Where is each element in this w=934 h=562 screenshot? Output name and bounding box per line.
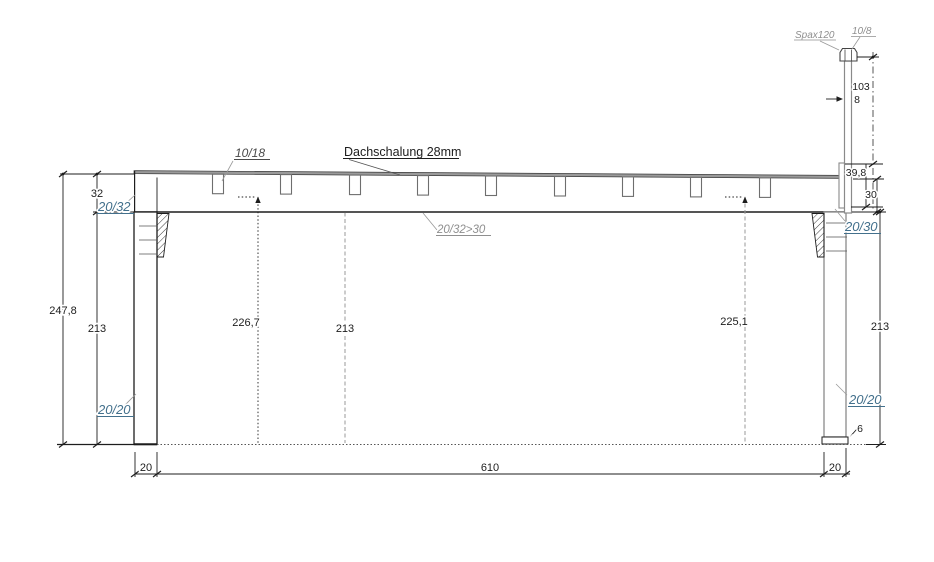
fascia-assembly bbox=[839, 49, 857, 214]
rafter bbox=[281, 175, 292, 195]
right-post bbox=[812, 212, 848, 444]
foot-height-pointer bbox=[850, 430, 857, 438]
component-labels: 10/18 Dachschalung 28mm 20/32>30 20/32 2… bbox=[97, 26, 885, 417]
rafter bbox=[418, 176, 429, 196]
rafter bbox=[486, 176, 497, 196]
right-knee-bracket bbox=[812, 214, 824, 258]
dim-board-height: 103 bbox=[852, 81, 870, 93]
dim-beam-height-right: 30 bbox=[865, 189, 877, 201]
dim-span: 610 bbox=[481, 462, 499, 474]
dim-board-thickness: 8 bbox=[854, 94, 860, 106]
rafter bbox=[213, 174, 224, 194]
dim-post-width-left: 20 bbox=[140, 462, 152, 474]
label-sheathing: Dachschalung 28mm bbox=[344, 145, 461, 159]
annotation-leaders bbox=[123, 37, 860, 407]
post-foot-plate bbox=[822, 437, 848, 444]
label-bracket-left: 20/32 bbox=[97, 199, 131, 214]
rafter bbox=[691, 177, 702, 197]
rafter bbox=[350, 175, 361, 195]
rafter bbox=[555, 177, 566, 197]
rafter bbox=[760, 178, 771, 198]
roof-assembly bbox=[134, 171, 848, 212]
dim-post-height-right: 213 bbox=[871, 321, 889, 333]
dim-clearance-right: 225,1 bbox=[720, 316, 748, 328]
left-post bbox=[134, 212, 169, 445]
dim-total-height: 247,8 bbox=[49, 305, 77, 317]
label-bracket-right: 20/30 bbox=[844, 219, 878, 234]
clearance-lines bbox=[238, 197, 748, 444]
dim-foot-height: 6 bbox=[857, 423, 863, 435]
label-cap-size: 10/8 bbox=[852, 26, 872, 37]
label-post-right: 20/20 bbox=[848, 392, 882, 407]
dim-clearance-center: 213 bbox=[336, 323, 354, 335]
fascia-board bbox=[845, 61, 852, 213]
label-screw: Spax120 bbox=[795, 30, 835, 41]
dim-post-width-right: 20 bbox=[829, 462, 841, 474]
dim-post-height-left: 213 bbox=[88, 323, 106, 335]
dim-upstand-height: 39,8 bbox=[846, 167, 867, 179]
dim-clearance-left: 226,7 bbox=[232, 317, 260, 329]
label-beam-size: 20/32>30 bbox=[436, 224, 486, 236]
cap-board bbox=[840, 49, 857, 62]
label-post-left: 20/20 bbox=[97, 402, 131, 417]
technical-drawing-canvas: 247,8 32 213 226,7 213 225,1 213 103 8 3… bbox=[0, 0, 934, 562]
carport-section-drawing: 247,8 32 213 226,7 213 225,1 213 103 8 3… bbox=[0, 0, 934, 562]
left-knee-bracket bbox=[157, 214, 169, 258]
dimension-labels: 247,8 32 213 226,7 213 225,1 213 103 8 3… bbox=[49, 81, 889, 474]
label-rafter-size: 10/18 bbox=[235, 146, 265, 160]
rafter bbox=[623, 177, 634, 197]
